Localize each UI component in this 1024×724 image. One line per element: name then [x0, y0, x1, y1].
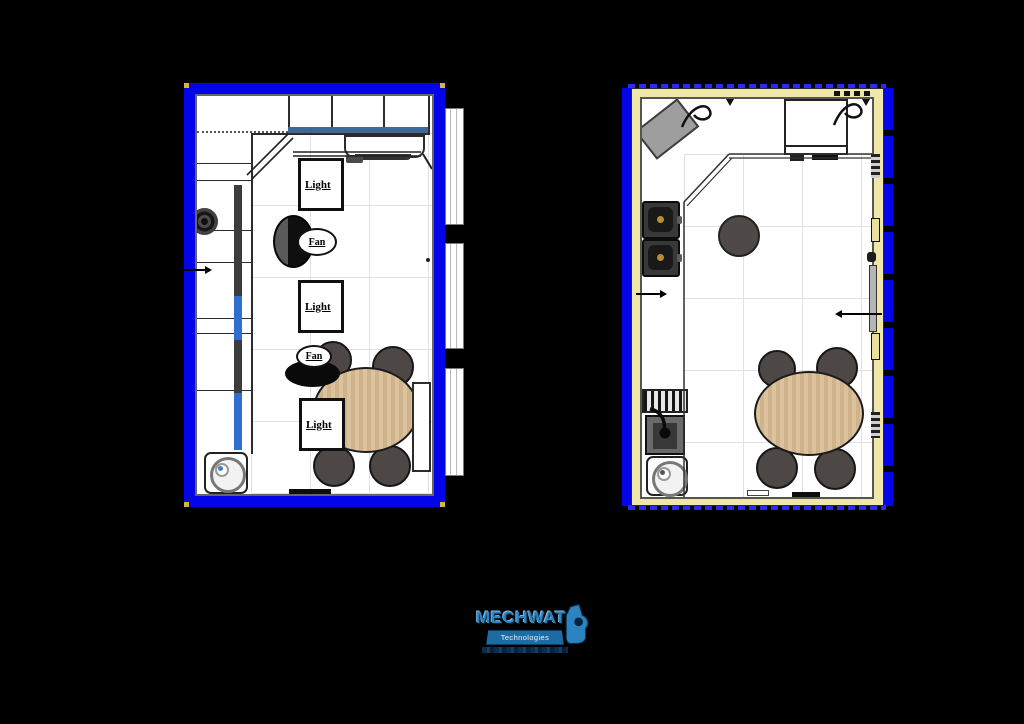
sliding-door-bar: [869, 265, 877, 332]
floor-plan-canvas: Fan Fan Light Light Light: [0, 0, 1024, 724]
exterior-wall-segment: [445, 243, 464, 349]
logo-hand-ok-icon: [564, 604, 590, 644]
door-frame-yellow: [871, 218, 880, 242]
leader-arrow-line: [842, 313, 882, 315]
hinge-mark: [871, 412, 880, 438]
corner-marker-icon: [440, 83, 445, 88]
exterior-wall-segment: [445, 108, 464, 225]
counter-edge-lines: [197, 96, 432, 494]
logo-title: MECHWAT: [476, 608, 566, 628]
logo-tagline-bar: [482, 647, 568, 653]
counter-edge-lines: [642, 99, 872, 497]
logo-title-text: MECHWAT: [476, 608, 566, 627]
leader-arrow-head: [835, 310, 842, 318]
blue-wall-right: [884, 88, 893, 506]
floor-plan-left: Fan Fan Light Light Light: [183, 82, 446, 508]
kitchen-room-right: [640, 97, 874, 499]
door-frame-yellow: [871, 333, 880, 360]
leader-arrow-head: [205, 266, 212, 274]
floor-plan-right: [622, 84, 896, 512]
corner-marker-icon: [184, 502, 189, 507]
leader-arrow-line: [636, 293, 660, 295]
logo: MECHWAT Technologies: [470, 604, 594, 660]
leader-arrow-line: [183, 269, 205, 271]
logo-ribbon: Technologies: [486, 630, 564, 645]
corner-marker-icon: [184, 83, 189, 88]
leader-arrow-head: [660, 290, 667, 298]
exterior-wall-segment: [445, 368, 464, 476]
corner-marker-icon: [440, 502, 445, 507]
kitchen-room-left: Fan Fan Light Light Light: [195, 94, 434, 496]
door-knob: [867, 252, 876, 262]
logo-subtitle-text: Technologies: [501, 633, 550, 642]
hinge-mark: [871, 154, 880, 178]
vent-dashed-mark: [834, 91, 872, 96]
